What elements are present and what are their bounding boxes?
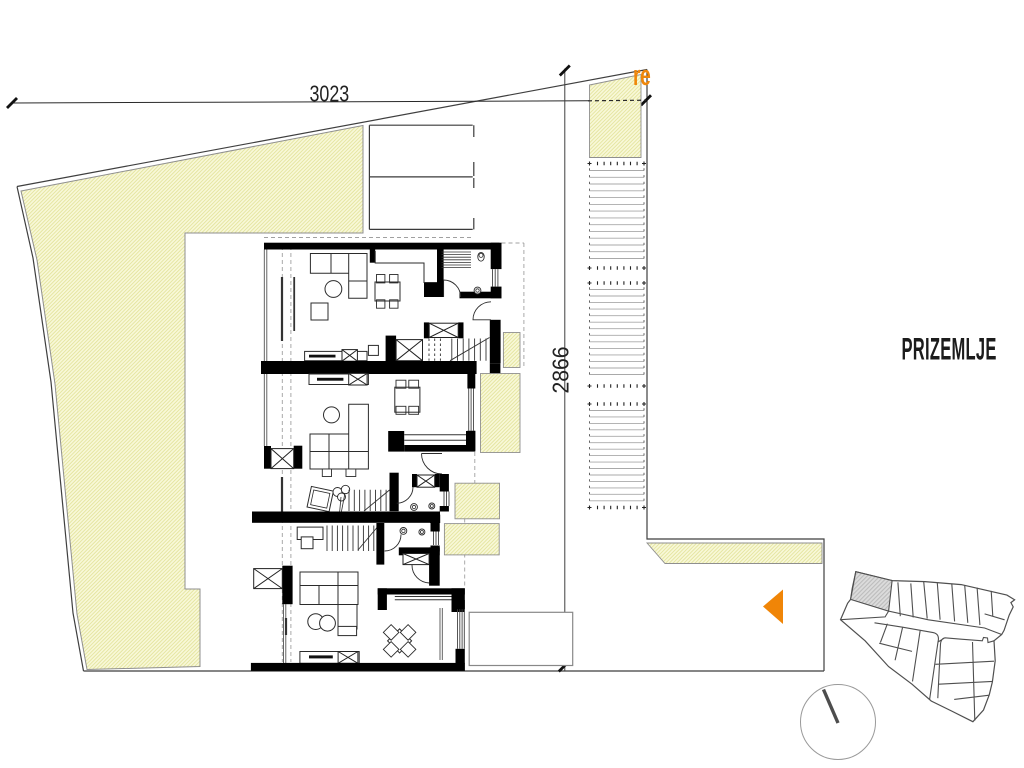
svg-text:3023: 3023 bbox=[310, 81, 350, 107]
svg-text:re: re bbox=[633, 60, 650, 92]
svg-text:2866: 2866 bbox=[547, 346, 573, 393]
svg-text:PRIZEMLJE: PRIZEMLJE bbox=[902, 332, 997, 367]
